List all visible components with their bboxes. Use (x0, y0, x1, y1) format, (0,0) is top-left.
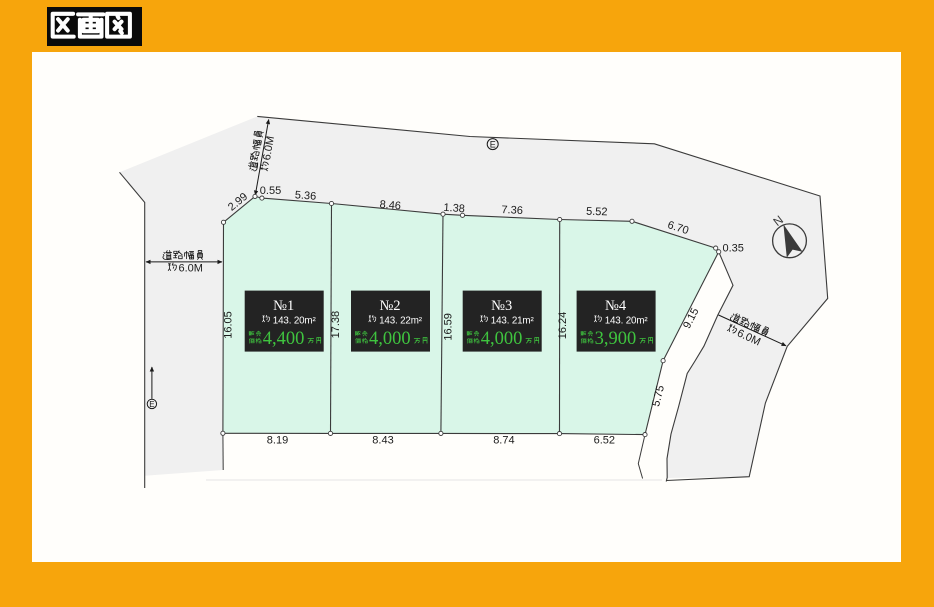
svg-text:4,000: 4,000 (481, 329, 523, 349)
svg-text:8.74: 8.74 (493, 435, 514, 447)
svg-text:№4: №4 (605, 298, 627, 314)
svg-text:8.19: 8.19 (267, 435, 288, 447)
svg-text:16.24: 16.24 (557, 312, 569, 340)
svg-text:16.59: 16.59 (442, 313, 454, 341)
svg-text:E: E (149, 400, 154, 409)
svg-text:№1: №1 (273, 298, 294, 314)
svg-text:5.36: 5.36 (294, 189, 316, 202)
svg-text:143. 22m²: 143. 22m² (379, 315, 423, 326)
svg-text:143. 21m²: 143. 21m² (491, 315, 535, 326)
svg-text:5.52: 5.52 (586, 206, 608, 219)
svg-text:16.05: 16.05 (223, 311, 235, 339)
svg-text:6.52: 6.52 (594, 435, 615, 447)
svg-text:№3: №3 (491, 298, 512, 314)
svg-text:4,400: 4,400 (263, 329, 305, 349)
svg-text:143. 20m²: 143. 20m² (273, 315, 317, 326)
svg-text:8.43: 8.43 (372, 435, 393, 447)
svg-text:№2: №2 (379, 298, 400, 314)
svg-text:4,000: 4,000 (369, 329, 411, 349)
svg-text:143. 20m²: 143. 20m² (605, 315, 649, 326)
svg-text:E: E (490, 140, 496, 150)
svg-text:3,900: 3,900 (595, 329, 637, 349)
svg-text:8.46: 8.46 (379, 199, 401, 213)
svg-text:17.38: 17.38 (330, 311, 342, 339)
svg-text:7.36: 7.36 (501, 204, 523, 217)
svg-text:6.0M: 6.0M (179, 262, 203, 274)
svg-text:0.35: 0.35 (723, 243, 744, 255)
svg-text:0.55: 0.55 (260, 185, 281, 197)
